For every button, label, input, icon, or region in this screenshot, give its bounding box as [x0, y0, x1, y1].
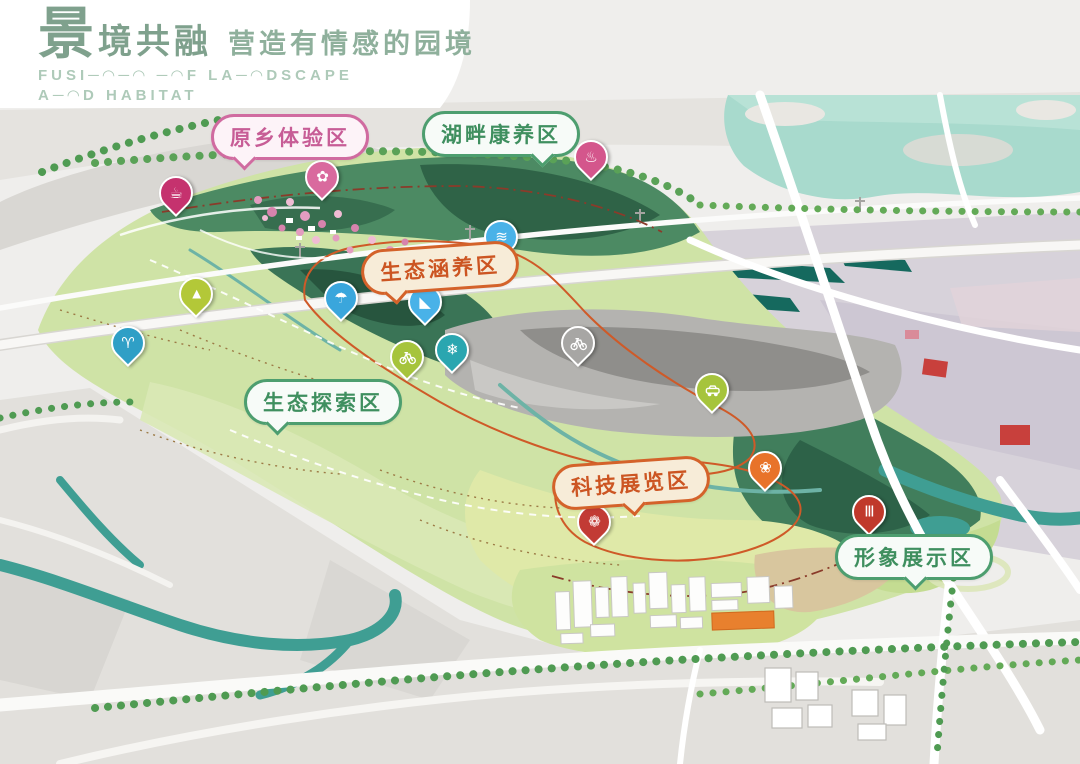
snowflake-icon: ❄	[446, 343, 459, 358]
zone-label-xingxiang[interactable]: 形象展示区	[835, 534, 993, 580]
museum-icon: Ⅲ	[864, 505, 874, 520]
hiking-pin[interactable]: ▲	[177, 277, 215, 323]
car-icon	[703, 381, 722, 400]
pin-head: Ⅲ	[845, 488, 893, 536]
hiking-icon: ▲	[189, 287, 204, 302]
pin-head	[688, 366, 736, 414]
page-title: 景 境共融 营造有情感的园境	[38, 6, 476, 63]
pin-head	[383, 333, 431, 381]
flower-icon: ❁	[588, 515, 601, 530]
title-initial: 景	[38, 6, 96, 62]
industry-flower-icon: ❀	[759, 461, 772, 476]
pin-head: ▲	[172, 270, 220, 318]
wellness-icon: ♨	[584, 150, 597, 165]
zone-label-yuanxiang[interactable]: 原乡体验区	[211, 114, 369, 160]
zone-label-hupan[interactable]: 湖畔康养区	[422, 111, 580, 157]
subtitle-en: FUSI─◠─◠ ─◠F LA─◠DSCAPE A─◠D HABITAT	[38, 66, 476, 107]
fountain-pin[interactable]: ☂	[322, 281, 360, 327]
flower-pin[interactable]: ❁	[575, 505, 613, 551]
wellness-pin[interactable]: ♨	[572, 140, 610, 186]
subtitle-cn: 营造有情感的园境	[228, 22, 476, 61]
zone-label-text: 生态探索区	[263, 392, 383, 415]
pin-head: ☂	[317, 274, 365, 322]
quarry-bicycle-pin[interactable]	[559, 326, 597, 372]
title-rest: 境共融	[98, 14, 212, 63]
bicycle-icon	[569, 334, 588, 353]
title-block: 景 境共融 营造有情感的园境 FUSI─◠─◠ ─◠F LA─◠DSCAPE A…	[38, 6, 476, 107]
skate-icon: ◣	[419, 295, 431, 310]
pin-head: ❄	[428, 326, 476, 374]
bicycle-icon	[398, 348, 417, 367]
fountain-icon: ☂	[334, 291, 347, 306]
bicycle-pin[interactable]	[388, 340, 426, 386]
teapot-pin[interactable]: ☕	[157, 176, 195, 222]
masterplan-page: 景 境共融 营造有情感的园境 FUSI─◠─◠ ─◠F LA─◠DSCAPE A…	[0, 0, 1080, 764]
zone-label-text: 原乡体验区	[230, 127, 350, 150]
zone-label-tansuo[interactable]: 生态探索区	[244, 379, 402, 425]
blossom-pin[interactable]: ✿	[303, 160, 341, 206]
rabbit-pin[interactable]: ♈	[109, 326, 147, 372]
rabbit-icon: ♈	[121, 336, 134, 351]
pin-head: ✿	[298, 153, 346, 201]
zone-label-text: 生态涵养区	[379, 254, 500, 285]
pin-head: ♈	[104, 319, 152, 367]
snowflake-pin[interactable]: ❄	[433, 333, 471, 379]
pin-head: ❀	[741, 444, 789, 492]
pin-head: ☕	[152, 169, 200, 217]
car-pin[interactable]	[693, 373, 731, 419]
teapot-icon: ☕	[169, 186, 182, 201]
subtitle-en-line1: FUSI─◠─◠ ─◠F LA─◠DSCAPE	[38, 66, 476, 86]
highlighted-building	[712, 611, 775, 630]
pin-head	[554, 319, 602, 367]
subtitle-en-line2: A─◠D HABITAT	[38, 86, 476, 106]
blossom-icon: ✿	[316, 170, 329, 185]
industry-flower-pin[interactable]: ❀	[746, 451, 784, 497]
